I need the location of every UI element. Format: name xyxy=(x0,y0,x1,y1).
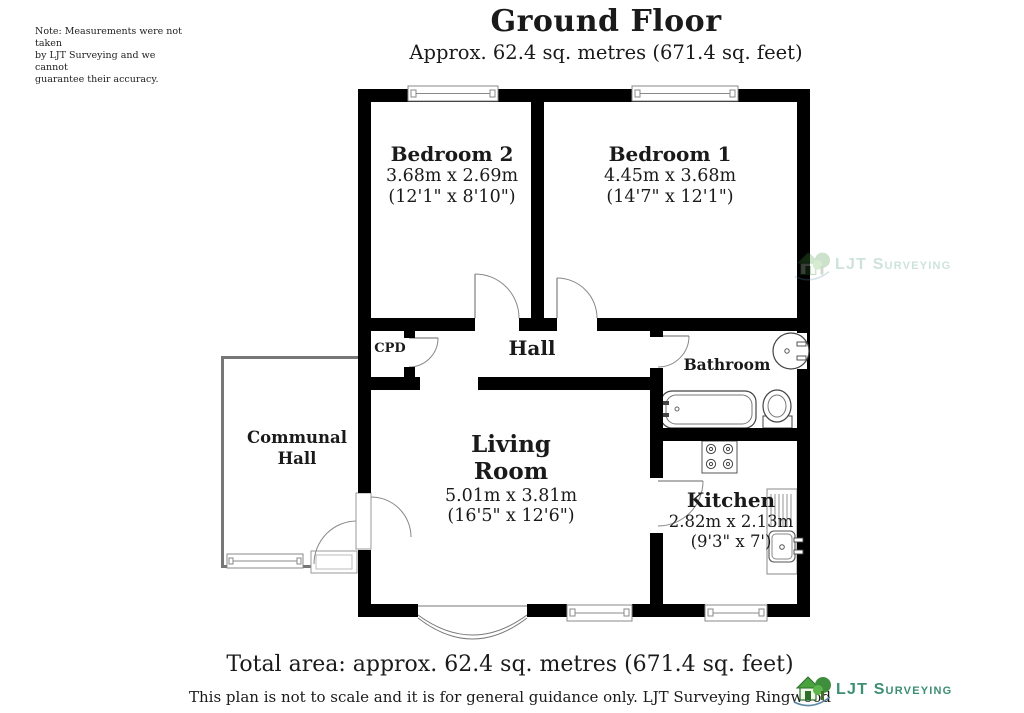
room-name: Bedroom 2 xyxy=(386,143,518,166)
bedroom2-door xyxy=(475,274,519,318)
room-name: Room xyxy=(445,459,577,486)
room-metric: 4.45m x 3.68m xyxy=(604,166,736,186)
kitchen-window xyxy=(705,605,767,621)
communal-hall-label: Communal Hall xyxy=(247,428,347,469)
scale-disclaimer: This plan is not to scale and it is for … xyxy=(160,688,860,706)
ljt-house-tree-icon xyxy=(792,670,832,710)
bay-window xyxy=(418,606,527,639)
floorplan-page: Note: Measurements were not taken by LJT… xyxy=(0,0,1024,713)
room-imperial: (16'5" x 12'6") xyxy=(445,506,577,526)
bedroom2-label: Bedroom 2 3.68m x 2.69m (12'1" x 8'10") xyxy=(386,143,518,207)
bedroom1-label: Bedroom 1 4.45m x 3.68m (14'7" x 12'1") xyxy=(604,143,736,207)
hall-label: Hall xyxy=(508,337,555,360)
room-imperial: (12'1" x 8'10") xyxy=(386,187,518,207)
bedroom1-door xyxy=(557,278,597,318)
bathroom-sink xyxy=(773,333,809,369)
communal-hall-window xyxy=(227,554,303,568)
cpd-label: CPD xyxy=(374,341,405,356)
bathtub xyxy=(661,391,756,428)
bedroom1-window xyxy=(632,86,738,101)
cpd-door xyxy=(409,338,438,367)
room-metric: 2.82m x 2.13m xyxy=(669,512,794,531)
living-room-window xyxy=(567,605,632,621)
room-name: Bedroom 1 xyxy=(604,143,736,166)
room-metric: 5.01m x 3.81m xyxy=(445,486,577,506)
room-name: Living xyxy=(445,432,577,459)
total-area-text: Total area: approx. 62.4 sq. metres (671… xyxy=(160,652,860,677)
ljt-surveying-logo: LJT Surveying xyxy=(792,670,952,710)
room-name: Kitchen xyxy=(669,489,794,512)
kitchen-stove xyxy=(702,441,737,473)
room-metric: 3.68m x 2.69m xyxy=(386,166,518,186)
entrance-step xyxy=(311,551,357,573)
toilet xyxy=(763,390,792,428)
ljt-logo-text: LJT Surveying xyxy=(836,681,952,699)
kitchen-label: Kitchen 2.82m x 2.13m (9'3" x 7') xyxy=(669,489,794,551)
living-room-label: Living Room 5.01m x 3.81m (16'5" x 12'6"… xyxy=(445,432,577,527)
bedroom2-window xyxy=(408,86,498,101)
bathroom-label: Bathroom xyxy=(684,356,771,374)
ljt-watermark-logo: LJT Surveying xyxy=(793,246,951,284)
ljt-logo-text: LJT Surveying xyxy=(835,256,951,274)
room-imperial: (9'3" x 7') xyxy=(669,532,794,551)
ljt-house-tree-icon xyxy=(793,246,831,284)
room-imperial: (14'7" x 12'1") xyxy=(604,187,736,207)
